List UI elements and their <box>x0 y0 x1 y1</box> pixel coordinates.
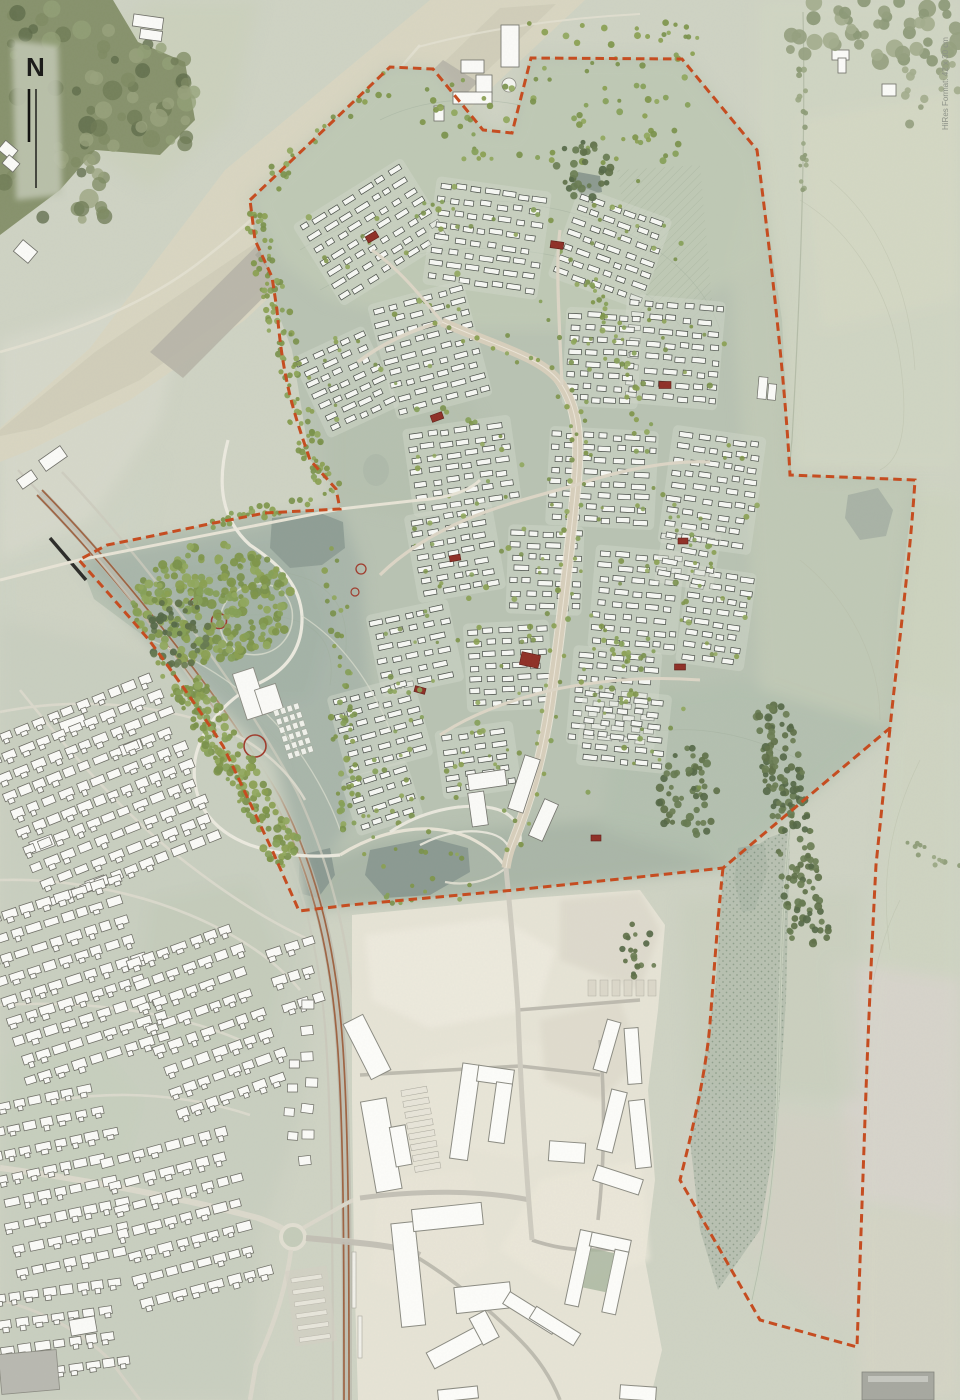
svg-text:HiRes Format: 42 x 30 cm: HiRes Format: 42 x 30 cm <box>941 37 950 130</box>
svg-text:N: N <box>26 52 45 82</box>
